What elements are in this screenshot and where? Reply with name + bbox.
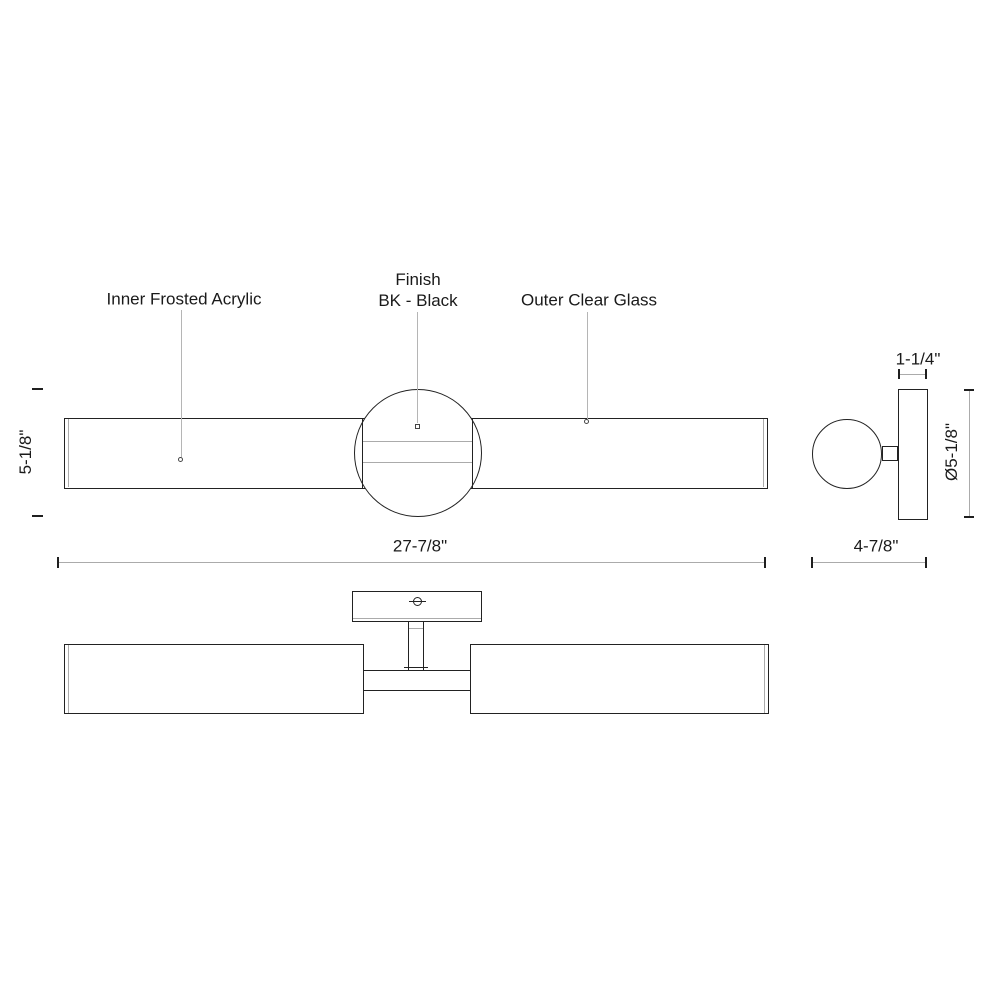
canopy-depth-dim-line xyxy=(899,374,927,375)
overall-depth-dim-text: 4-7/8" xyxy=(854,536,899,557)
screw-slot-line xyxy=(409,601,426,602)
height-dim-text: 5-1/8" xyxy=(16,430,36,475)
canopy-depth-dim-left-tick xyxy=(898,369,900,379)
leader-marker-finish xyxy=(415,424,420,429)
canopy-crossbar-lower-line xyxy=(363,462,473,463)
stem-right-edge xyxy=(423,622,424,670)
canopy-depth-dim-right-tick xyxy=(925,369,927,379)
label-outer-clear-glass: Outer Clear Glass xyxy=(521,290,657,311)
side-connector xyxy=(882,446,898,461)
canopy-diameter-dim-bottom-tick xyxy=(964,516,974,518)
stem-left-edge xyxy=(408,622,409,670)
bottom-right-tube-cap-inner-line xyxy=(764,645,765,713)
leader-marker-outer-clear-glass xyxy=(584,419,589,424)
leader-marker-inner-frosted-acrylic xyxy=(178,457,183,462)
stem-base-flange-line xyxy=(404,667,428,668)
front-tube-inner-cap-right xyxy=(472,418,473,489)
height-dim-top-tick xyxy=(32,388,43,390)
label-inner-frosted-acrylic: Inner Frosted Acrylic xyxy=(107,289,262,310)
width-dim-line xyxy=(58,562,765,563)
side-canopy-plate xyxy=(898,389,928,520)
leader-outer-clear-glass xyxy=(587,312,588,419)
overall-depth-dim-right-tick xyxy=(925,557,927,568)
leader-finish xyxy=(417,312,418,423)
width-dim-left-tick xyxy=(57,557,59,568)
canopy-diameter-dim-top-tick xyxy=(964,389,974,391)
stem-collar-line xyxy=(409,628,423,629)
crossbar-bottom-line xyxy=(364,690,470,691)
canopy-circle-front xyxy=(354,389,482,517)
canopy-diameter-dim-line xyxy=(969,390,970,518)
bottom-right-tube-outline xyxy=(470,644,769,714)
overall-depth-dim-left-tick xyxy=(811,557,813,568)
label-finish-line1: Finish xyxy=(378,269,457,290)
front-tube-inner-cap-left xyxy=(362,418,363,489)
height-dim-bottom-tick xyxy=(32,515,43,517)
spec-sheet-drawing: Inner Frosted Acrylic Finish BK - Black … xyxy=(0,0,1000,1000)
leader-inner-frosted-acrylic xyxy=(181,310,182,457)
crossbar-top-line xyxy=(364,670,470,671)
side-tube-circle xyxy=(812,419,882,489)
bottom-left-tube-cap-inner-line xyxy=(68,645,69,713)
canopy-depth-dim-text: 1-1/4" xyxy=(896,349,941,370)
front-tube-left-cap-inner-line xyxy=(68,419,69,487)
width-dim-right-tick xyxy=(764,557,766,568)
canopy-crossbar-upper-line xyxy=(363,441,473,442)
bottom-left-tube-outline xyxy=(64,644,364,714)
front-tube-right-cap-inner-line xyxy=(763,419,764,487)
label-finish-line2: BK - Black xyxy=(378,290,457,311)
label-finish: Finish BK - Black xyxy=(378,269,457,311)
overall-depth-dim-line xyxy=(812,562,926,563)
width-dim-text: 27-7/8" xyxy=(393,536,447,557)
canopy-diameter-dim-text: Ø5-1/8" xyxy=(942,423,962,481)
mounting-plate-inner-line xyxy=(353,618,481,619)
